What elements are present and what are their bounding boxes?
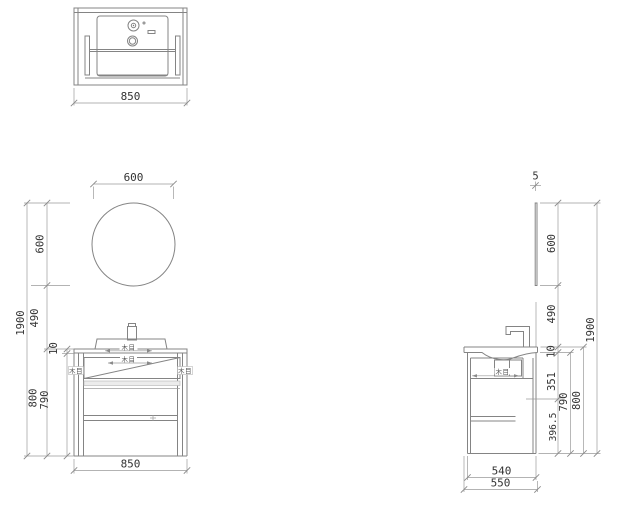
- basin-side-profile: [464, 353, 538, 360]
- wood-grain-left-label: 木目: [69, 366, 83, 375]
- faucet-plan-icon: [128, 20, 155, 34]
- top-width-label: 850: [121, 90, 141, 103]
- left-bracket-plan: [85, 36, 90, 75]
- wood-grain-right-tag: 木目: [178, 366, 193, 375]
- side-cabinet-height-label: 800: [571, 391, 583, 410]
- top-view: 850: [71, 8, 190, 106]
- cabinet-side: [468, 353, 537, 454]
- drawer-gap-band: [84, 381, 180, 386]
- side-total-height-label: 1900: [585, 317, 597, 342]
- wood-grain-counter-leader: 木目: [105, 342, 152, 352]
- cabinet-front: [74, 353, 187, 456]
- mirror-side: [535, 203, 537, 286]
- mirror-width-label: 600: [124, 171, 144, 184]
- mirror-thickness-label: 5: [532, 171, 538, 183]
- front-cabinet-height-label: 800: [28, 389, 40, 408]
- cad-sheet: 850 600: [0, 0, 632, 513]
- right-bracket-plan: [176, 36, 181, 75]
- wood-grain-counter-label: 木目: [122, 342, 136, 351]
- front-counter-thickness-label: 10: [48, 342, 60, 355]
- front-view: 600: [15, 171, 192, 474]
- front-width-label: 850: [121, 458, 141, 471]
- side-body-height-label: 790: [558, 393, 570, 412]
- side-gap-height-label: 490: [546, 305, 558, 324]
- front-gap-height-label: 490: [29, 309, 41, 328]
- side-lower-section-label: 396.5: [548, 413, 559, 442]
- wood-grain-side-leader: 木目: [472, 367, 519, 378]
- drain-plan-icon: [128, 36, 138, 46]
- wood-grain-side-label: 木目: [496, 367, 510, 376]
- side-upper-section-label: 351: [546, 372, 558, 391]
- wood-grain-drawer-label: 木目: [122, 355, 136, 364]
- total-depth-label: 550: [491, 477, 511, 490]
- front-mirror-height-label: 600: [35, 235, 47, 254]
- front-left-dimensions: [24, 200, 74, 459]
- wood-grain-right-label: 木目: [178, 366, 192, 375]
- side-counter-thickness-label: 10: [546, 345, 558, 358]
- side-mirror-height-label: 600: [546, 234, 558, 253]
- wood-grain-drawer-leader: 木目: [108, 355, 152, 365]
- faucet-side-icon: [506, 327, 530, 348]
- front-body-height-label: 790: [39, 391, 51, 410]
- side-view: 5: [461, 171, 601, 493]
- faucet-front-icon: [128, 324, 137, 341]
- mirror-thickness-dimension: [530, 182, 541, 192]
- vanity-three-view-drawing: 850 600: [0, 0, 632, 513]
- mirror-front: [92, 203, 175, 286]
- wood-grain-left-tag: 木目: [69, 366, 84, 375]
- front-total-height-label: 1900: [15, 310, 27, 335]
- countertop-plan: [74, 8, 187, 85]
